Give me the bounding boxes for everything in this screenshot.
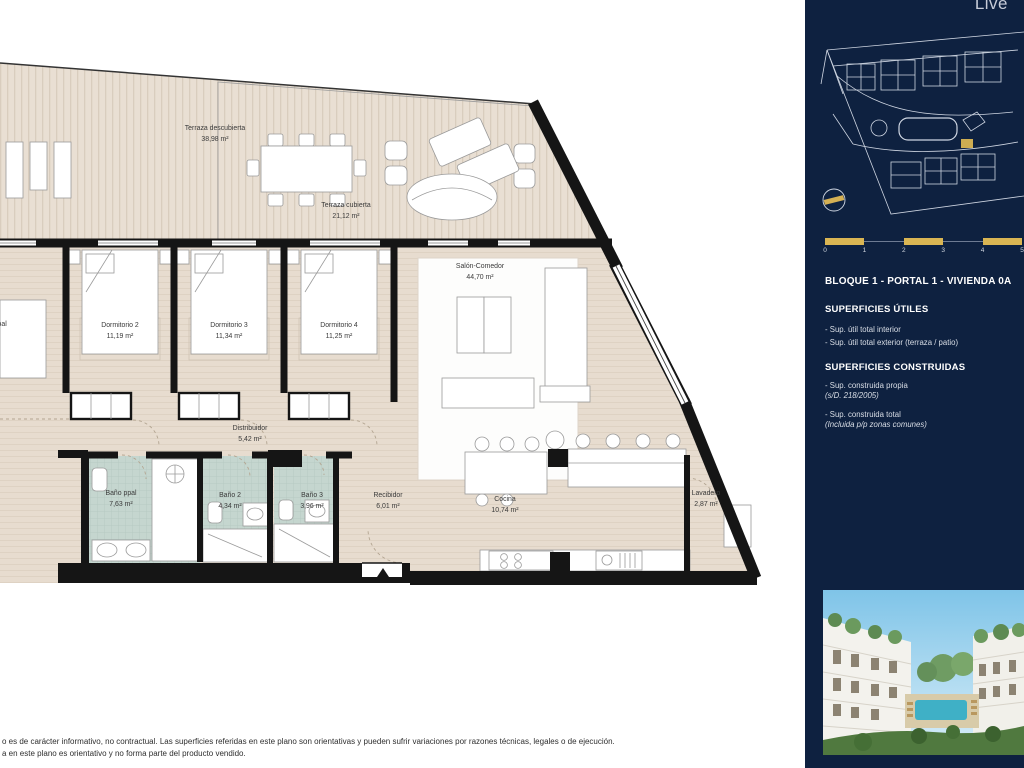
room-label-cocina: Cocina 10,74 m² <box>491 495 518 516</box>
floor-plan: Terraza descubierta 38,98 m² Terraza cub… <box>0 0 805 768</box>
scale-tick: 5 <box>1020 247 1024 254</box>
project-render-photo <box>823 590 1024 755</box>
surface-item: - Sup. útil total interior <box>825 325 901 335</box>
room-label-bano-3: Baño 3 3,96 m² <box>300 491 323 512</box>
room-label-dormitorio-2: Dormitorio 2 11,19 m² <box>101 321 139 342</box>
disclaimer-line-1: o es de carácter informativo, no contrac… <box>2 737 615 746</box>
scale-segment <box>983 238 1022 245</box>
scale-segment <box>864 241 903 242</box>
highlighted-unit <box>961 139 973 148</box>
scale-tick: 1 <box>863 247 867 254</box>
floor-plan-svg <box>0 0 805 768</box>
section-heading-superficies-construidas: SUPERFICIES CONSTRUIDAS <box>825 362 965 373</box>
scale-tick: 2 <box>902 247 906 254</box>
room-label-bano-2: Baño 2 4,34 m² <box>218 491 241 512</box>
disclaimer-line-2: a en este plano es orientativo y no form… <box>2 749 246 758</box>
scale-segment <box>904 238 943 245</box>
surface-item: - Sup. construida total (Incluida p/p zo… <box>825 410 927 429</box>
scale-bar: 0 1 2 3 4 5 <box>825 238 1022 256</box>
section-heading-superficies-utiles: SUPERFICIES ÚTILES <box>825 304 928 315</box>
room-label-terraza-descubierta: Terraza descubierta 38,98 m² <box>185 124 246 145</box>
scale-tick: 0 <box>823 247 827 254</box>
scale-segment <box>943 241 982 242</box>
room-label-bano-ppal: Baño ppal 7,63 m² <box>105 489 136 510</box>
scale-segment <box>825 238 864 245</box>
scale-tick: 3 <box>941 247 945 254</box>
brand-logo: Live <box>975 0 1008 14</box>
sidebar: Live <box>805 0 1024 768</box>
surface-item: - Sup. útil total exterior (terraza / pa… <box>825 338 958 348</box>
surface-item: - Sup. construida propia (s/D. 218/2005) <box>825 381 908 400</box>
room-label-lavadero: Lavadero 2,87 m² <box>692 489 721 510</box>
scale-tick: 4 <box>981 247 985 254</box>
room-label-distribuidor: Distribuidor 5,42 m² <box>233 424 268 445</box>
room-label-recibidor: Recibidor 6,01 m² <box>373 491 402 512</box>
brochure-page: Terraza descubierta 38,98 m² Terraza cub… <box>0 0 1024 768</box>
room-label-terraza-cubierta: Terraza cubierta 21,12 m² <box>321 201 370 222</box>
unit-title: BLOQUE 1 - PORTAL 1 - VIVIENDA 0A <box>825 276 1011 287</box>
room-label-salon-comedor: Salón-Comedor 44,70 m² <box>456 262 504 283</box>
room-label-dormitorio-3: Dormitorio 3 11,34 m² <box>210 321 248 342</box>
compass-icon <box>823 189 845 211</box>
room-label-dormitorio-4: Dormitorio 4 11,25 m² <box>320 321 358 342</box>
site-plan-map <box>813 24 1024 224</box>
room-label-dormitorio-ppal: Dormitorio ppal <box>0 320 7 331</box>
